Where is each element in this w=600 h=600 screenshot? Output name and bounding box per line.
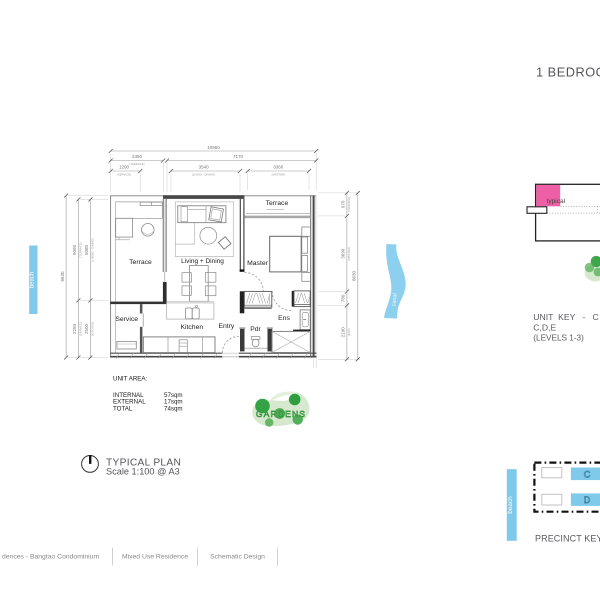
svg-text:1 BEDROOM: 1 BEDROOM <box>536 65 600 80</box>
svg-text:PRECINCT KEY: PRECINCT KEY <box>535 533 600 543</box>
svg-text:dences - Bangtao Condominium: dences - Bangtao Condominium <box>2 554 99 561</box>
svg-text:5080: 5080 <box>84 244 89 255</box>
svg-text:Kitchen: Kitchen <box>180 324 203 331</box>
svg-text:8630: 8630 <box>352 270 357 281</box>
svg-text:(MASTER): (MASTER) <box>347 247 351 261</box>
svg-text:970: 970 <box>341 200 346 208</box>
svg-text:beach: beach <box>507 496 514 514</box>
svg-text:UNIT AREA:: UNIT AREA: <box>113 376 148 383</box>
svg-text:(SERVICE): (SERVICE) <box>117 172 131 176</box>
svg-text:(TERRACE): (TERRACE) <box>129 162 144 166</box>
svg-text:(ENS): (ENS) <box>347 328 351 336</box>
svg-text:C: C <box>584 469 591 479</box>
svg-text:Terrace: Terrace <box>129 259 152 266</box>
svg-text:C,D,E: C,D,E <box>533 322 556 332</box>
svg-text:1200: 1200 <box>119 165 130 170</box>
svg-text:Schematic Design: Schematic Design <box>210 554 265 561</box>
svg-text:Master: Master <box>247 260 269 267</box>
svg-text:2250: 2250 <box>72 323 77 334</box>
svg-text:Ens: Ens <box>278 315 290 322</box>
svg-text:TOTAL: TOTAL <box>113 405 133 412</box>
svg-text:5050: 5050 <box>72 244 77 255</box>
svg-text:74sqm: 74sqm <box>164 405 183 412</box>
svg-text:Living + Dining: Living + Dining <box>181 258 224 265</box>
svg-text:8630: 8630 <box>60 271 65 282</box>
svg-text:D: D <box>584 495 591 505</box>
svg-text:3360: 3360 <box>273 165 284 170</box>
svg-text:(TERRACE): (TERRACE) <box>79 242 83 257</box>
svg-text:7170: 7170 <box>233 154 244 159</box>
svg-text:(LIVING - DINING): (LIVING - DINING) <box>192 172 215 176</box>
svg-text:Entry: Entry <box>218 323 234 330</box>
svg-text:2190: 2190 <box>341 327 346 338</box>
svg-text:beach: beach <box>29 272 35 288</box>
svg-text:10950: 10950 <box>207 145 220 150</box>
svg-text:(LEVELS 1-3): (LEVELS 1-3) <box>533 334 584 343</box>
svg-text:Service: Service <box>115 316 138 323</box>
svg-text:Mixed Use Residence: Mixed Use Residence <box>122 554 188 561</box>
svg-text:2350: 2350 <box>132 154 143 159</box>
svg-text:3540: 3540 <box>199 165 210 170</box>
svg-text:2500: 2500 <box>84 323 89 334</box>
svg-text:GARDENS: GARDENS <box>256 409 306 419</box>
svg-text:UNIT KEY - C: UNIT KEY - C <box>533 312 598 322</box>
svg-text:Scale 1:100 @ A3: Scale 1:100 @ A3 <box>106 467 180 477</box>
svg-text:780: 780 <box>341 294 346 302</box>
svg-text:(TERRACE): (TERRACE) <box>347 197 351 212</box>
svg-text:Pdr: Pdr <box>250 326 261 333</box>
svg-text:(SERVICE): (SERVICE) <box>79 322 83 336</box>
svg-text:(KITCHEN): (KITCHEN) <box>91 322 95 336</box>
svg-text:3690: 3690 <box>341 248 346 259</box>
svg-text:typical: typical <box>547 198 566 205</box>
svg-text:(MASTER): (MASTER) <box>272 172 286 176</box>
svg-text:Terrace: Terrace <box>266 200 289 207</box>
svg-text:(LIVING - DINING): (LIVING - DINING) <box>91 238 95 261</box>
